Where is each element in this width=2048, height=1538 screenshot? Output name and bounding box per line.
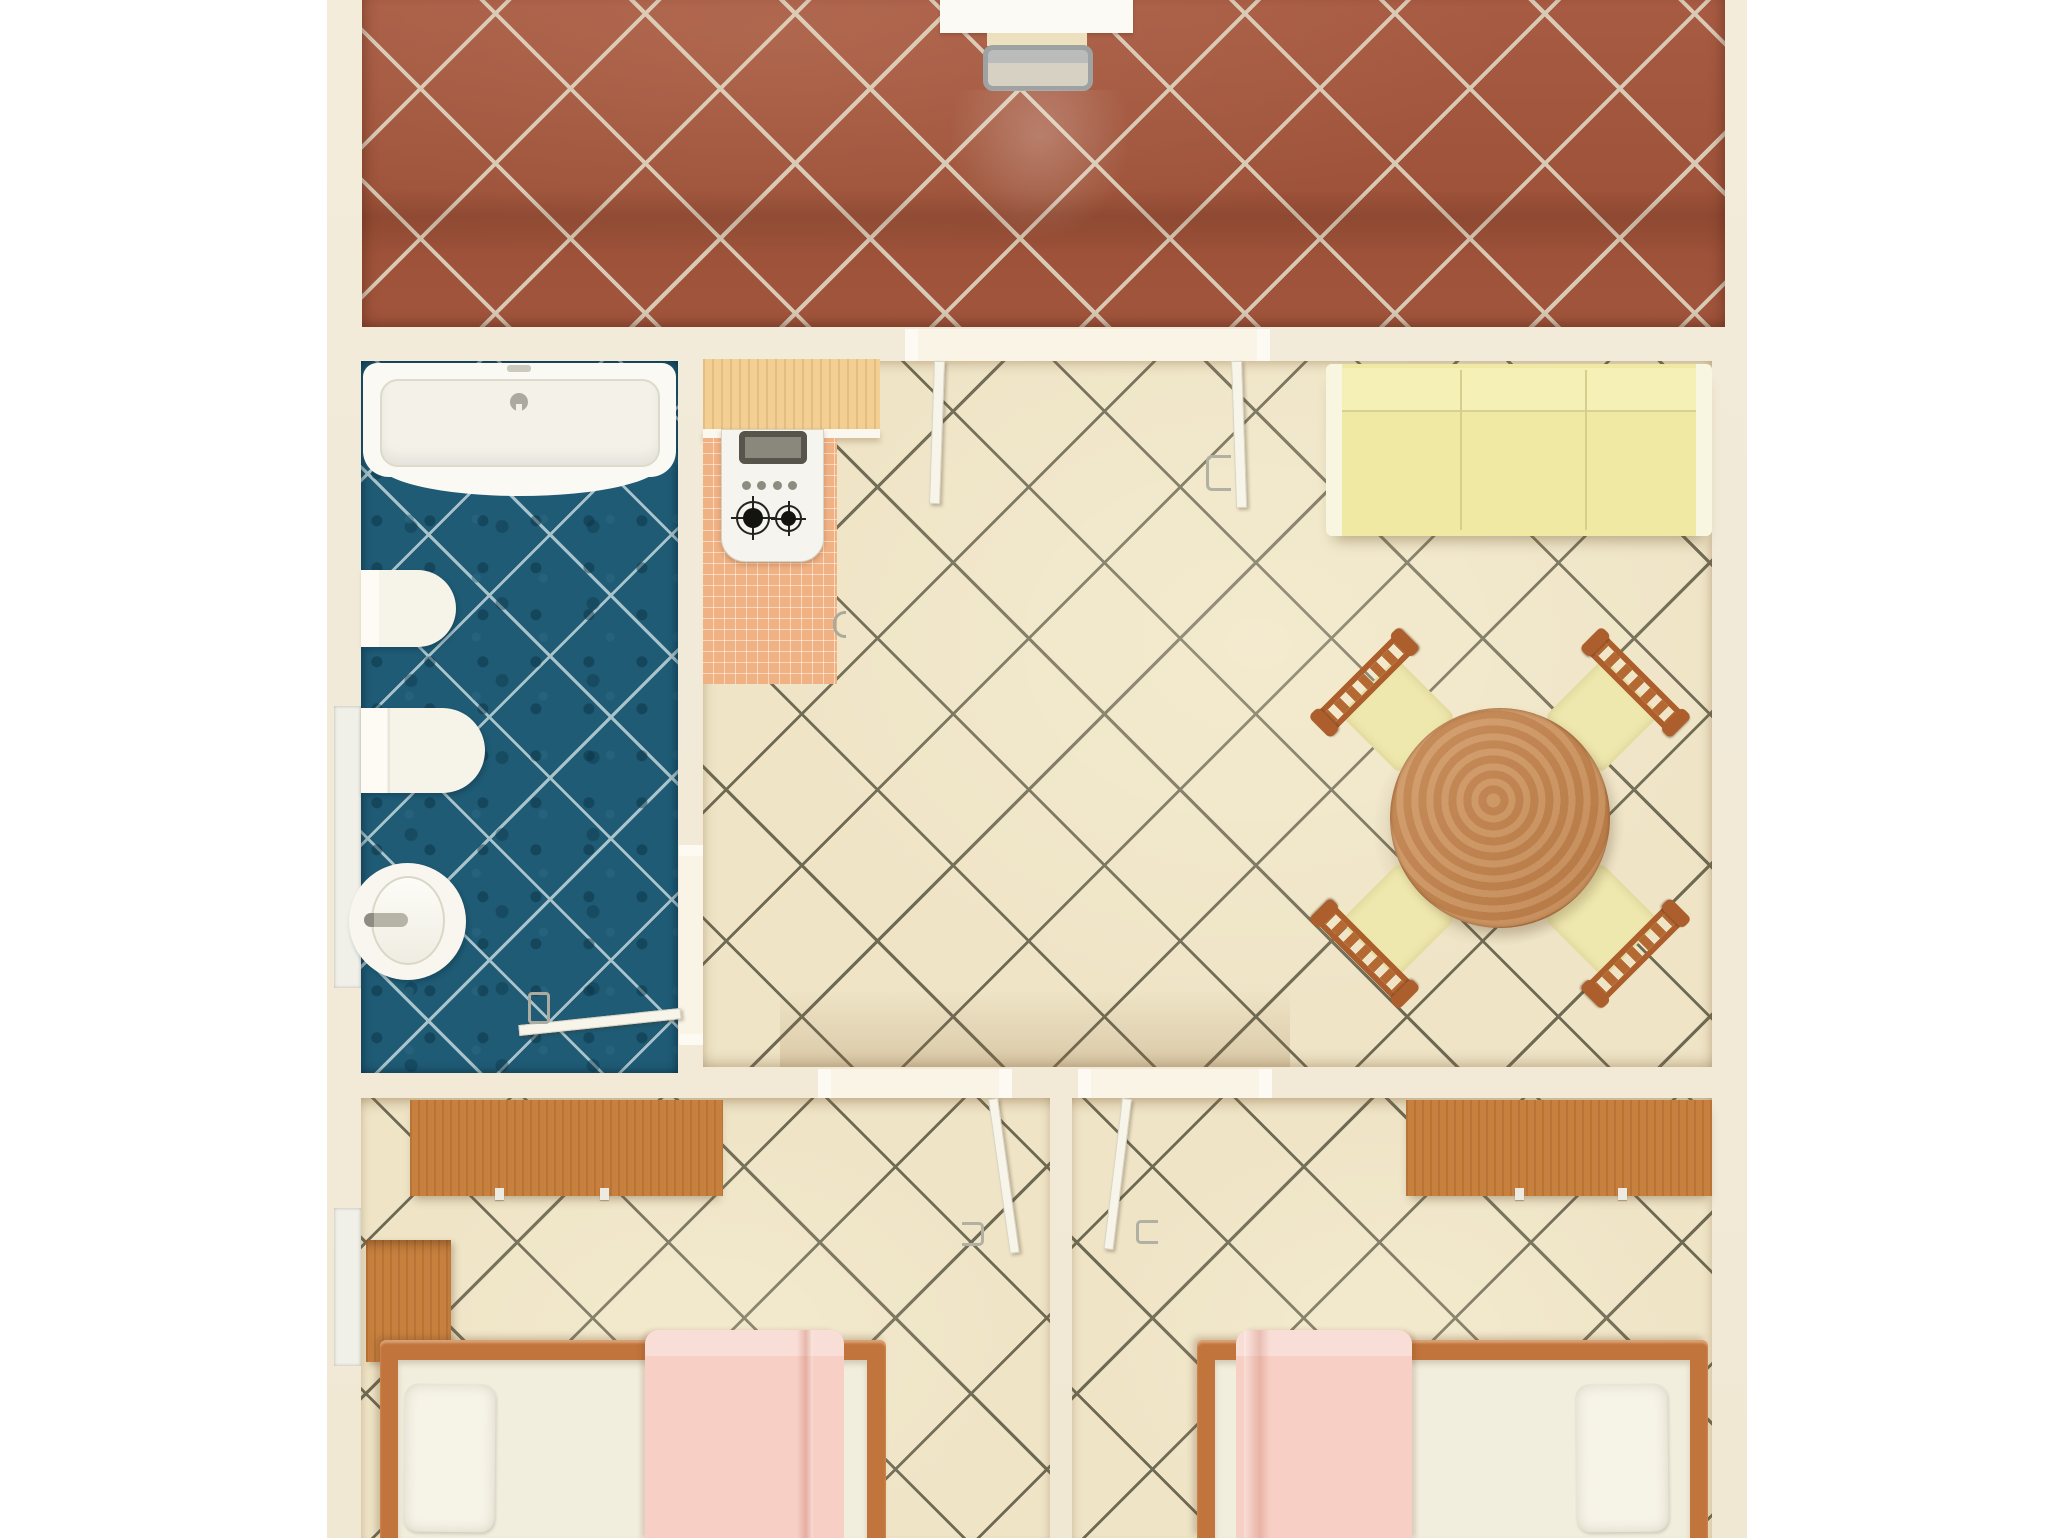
stove-knob xyxy=(773,481,782,490)
sofa xyxy=(1326,364,1712,536)
bed-left-blanket xyxy=(645,1330,844,1538)
bedroom-left-wardrobe xyxy=(410,1100,723,1196)
stove-burner-small-disc xyxy=(781,511,796,526)
hallway-shadow xyxy=(780,990,1290,1067)
wardrobe-handle xyxy=(1618,1188,1627,1200)
bathtub-drain xyxy=(510,393,528,411)
bathtub-faucet xyxy=(507,365,531,372)
stove-knob xyxy=(742,481,751,490)
terrace-bench-reflection xyxy=(948,90,1132,240)
stove-knob xyxy=(757,481,766,490)
bedroom-left-window xyxy=(334,1208,361,1366)
wardrobe-handle xyxy=(600,1188,609,1200)
blanket-fold-top xyxy=(645,1330,844,1356)
floor-plan xyxy=(0,0,2048,1538)
sofa-armrest-left xyxy=(1326,364,1342,536)
bedroom-right-wardrobe xyxy=(1406,1100,1712,1196)
bedroom-right-door-opening xyxy=(1078,1069,1272,1098)
blanket-fold xyxy=(797,1330,813,1538)
bedroom-right-door-handle xyxy=(1136,1220,1158,1244)
toilet xyxy=(361,570,456,647)
wardrobe-handle xyxy=(495,1188,504,1200)
washbasin-faucet xyxy=(364,913,408,927)
stove-burner-large-disc xyxy=(743,508,763,528)
wardrobe-handle xyxy=(1515,1188,1524,1200)
stove-knob xyxy=(788,481,797,490)
bed-right-pillow xyxy=(1575,1384,1669,1533)
terrace-door-handle xyxy=(1206,455,1231,491)
bathroom-door-handle xyxy=(528,992,550,1024)
blanket-fold xyxy=(1244,1330,1270,1538)
sofa-cushion-seam xyxy=(1460,370,1462,530)
bedroom-left-door-handle xyxy=(962,1222,984,1246)
sofa-cushion-seam xyxy=(1585,370,1587,530)
bathroom-door-opening xyxy=(679,845,703,1045)
kitchen-counter xyxy=(703,359,880,429)
sofa-backrest xyxy=(1342,368,1696,412)
dining-table xyxy=(1390,708,1610,928)
bed-right-blanket xyxy=(1236,1330,1412,1538)
terrace-table xyxy=(940,0,1133,33)
bed-left-pillow xyxy=(403,1384,496,1533)
bedroom-left-door-opening xyxy=(818,1069,1012,1098)
bidet xyxy=(361,708,485,793)
terrace-door-opening xyxy=(905,329,1270,361)
terrace-bench xyxy=(983,45,1093,91)
sofa-armrest-right xyxy=(1696,364,1712,536)
stove-tray xyxy=(739,431,807,464)
